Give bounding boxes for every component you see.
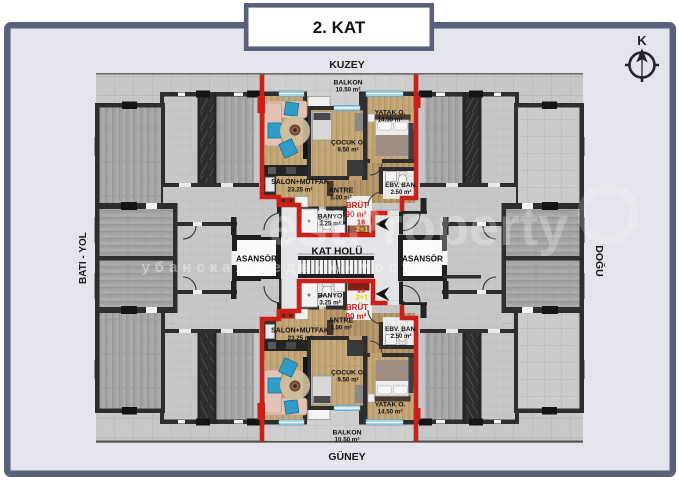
svg-text:3.25 m²: 3.25 m² <box>319 300 340 307</box>
svg-text:ANTRE: ANTRE <box>329 186 354 195</box>
svg-text:K: K <box>637 33 647 48</box>
svg-text:14.50 m²: 14.50 m² <box>378 409 403 416</box>
svg-text:GÜNEY: GÜNEY <box>328 450 365 463</box>
svg-text:BALKON: BALKON <box>332 430 361 437</box>
svg-text:14.50 m²: 14.50 m² <box>378 117 403 124</box>
svg-text:2.50 m²: 2.50 m² <box>391 189 412 196</box>
svg-text:ANTRE: ANTRE <box>329 316 354 325</box>
svg-text:ÇOCUK O.: ÇOCUK O. <box>331 140 365 147</box>
svg-text:10.50 m²: 10.50 m² <box>336 87 361 94</box>
svg-text:2.50 m²: 2.50 m² <box>391 333 412 340</box>
svg-text:KUZEY: KUZEY <box>329 59 365 71</box>
svg-text:2. KAT: 2. KAT <box>313 18 366 37</box>
svg-text:ÇOCUK O.: ÇOCUK O. <box>331 370 365 377</box>
svg-text:estProperty: estProperty <box>268 197 568 257</box>
svg-text:BALKON: BALKON <box>333 80 362 87</box>
svg-text:YATAK O.: YATAK O. <box>375 110 406 117</box>
svg-text:SALON+MUTFAK: SALON+MUTFAK <box>271 328 329 335</box>
svg-text:23.25 m²: 23.25 m² <box>288 187 313 194</box>
svg-text:BATI - YOL: BATI - YOL <box>78 232 89 284</box>
svg-text:BANYO: BANYO <box>318 293 343 300</box>
svg-text:5.00 m²: 5.00 m² <box>330 325 351 332</box>
svg-text:9.50 m²: 9.50 m² <box>337 377 358 384</box>
svg-text:2+1: 2+1 <box>356 293 369 302</box>
svg-text:EBV. BAN.: EBV. BAN. <box>385 326 417 333</box>
svg-text:9.50 m²: 9.50 m² <box>337 147 358 154</box>
svg-text:23.25 m²: 23.25 m² <box>288 335 313 342</box>
svg-text:10.50 m²: 10.50 m² <box>335 437 360 444</box>
svg-text:BRÜT: BRÜT <box>346 303 368 312</box>
svg-text:SALON+MUTFAK: SALON+MUTFAK <box>271 179 329 186</box>
svg-text:DOĞU: DOĞU <box>593 245 606 277</box>
svg-text:YATAK O.: YATAK O. <box>375 402 406 409</box>
svg-text:убанская недвижимость: убанская недвижимость <box>141 259 428 276</box>
svg-text:EBV. BAN.: EBV. BAN. <box>385 182 417 189</box>
